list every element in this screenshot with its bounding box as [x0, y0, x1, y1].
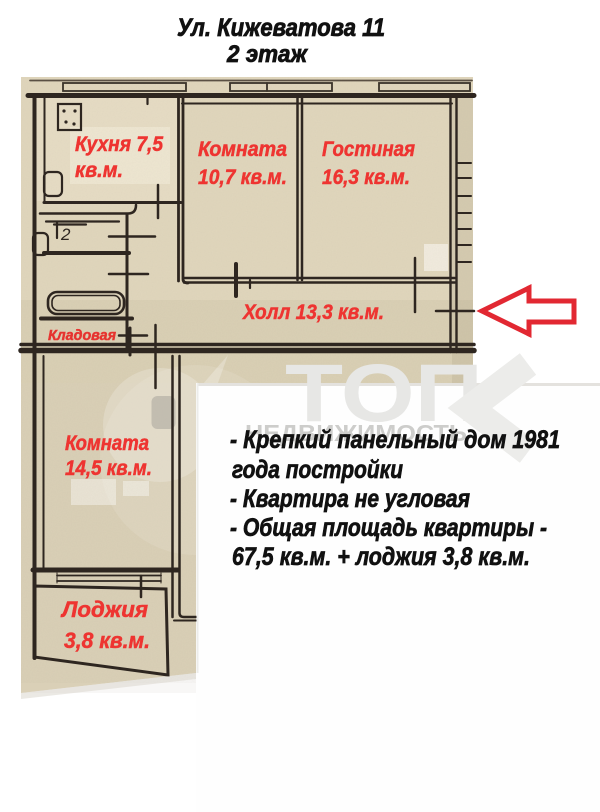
svg-text:- Крепкий панельный дом 1981: - Крепкий панельный дом 1981	[230, 426, 560, 454]
svg-text:Кухня 7,5: Кухня 7,5	[75, 133, 163, 156]
svg-text:Холл 13,3 кв.м.: Холл 13,3 кв.м.	[242, 301, 384, 324]
svg-text:года постройки: года постройки	[232, 456, 403, 484]
svg-text:- Квартира не угловая: - Квартира не угловая	[230, 485, 470, 513]
svg-text:- Общая площадь квартиры -: - Общая площадь квартиры -	[230, 514, 547, 542]
svg-text:Ул. Кижеватова 11: Ул. Кижеватова 11	[177, 14, 385, 42]
svg-text:Лоджия: Лоджия	[60, 597, 148, 622]
svg-text:2 этаж: 2 этаж	[226, 41, 308, 68]
svg-text:67,5 кв.м. + лоджия 3,8 кв.м.: 67,5 кв.м. + лоджия 3,8 кв.м.	[232, 543, 530, 571]
svg-text:14,5 кв.м.: 14,5 кв.м.	[65, 457, 152, 480]
svg-text:Кладовая: Кладовая	[48, 328, 116, 344]
svg-text:кв.м.: кв.м.	[75, 159, 123, 182]
svg-text:Гостиная: Гостиная	[322, 138, 415, 161]
svg-text:16,3 кв.м.: 16,3 кв.м.	[322, 166, 410, 189]
svg-text:Комната: Комната	[65, 432, 149, 455]
svg-text:3,8 кв.м.: 3,8 кв.м.	[64, 628, 150, 653]
svg-text:2: 2	[60, 225, 71, 244]
svg-text:Комната: Комната	[198, 138, 287, 161]
svg-text:10,7 кв.м.: 10,7 кв.м.	[198, 166, 287, 189]
